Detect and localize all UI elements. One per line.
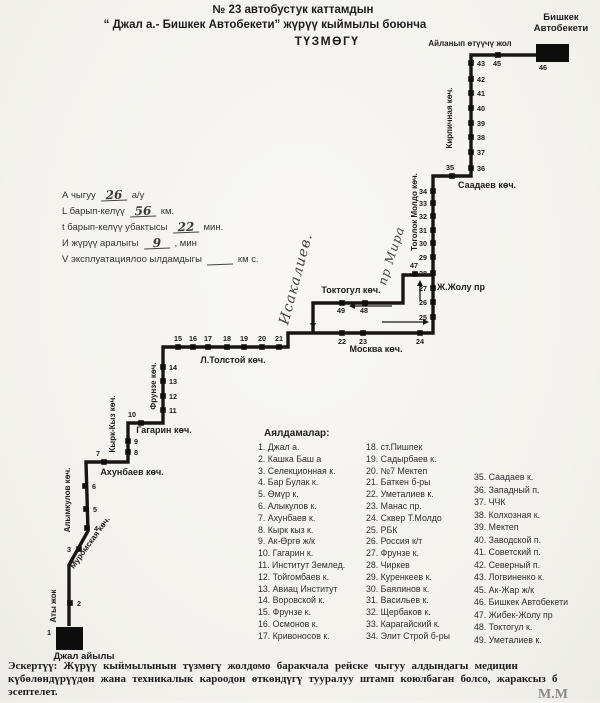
stop-number: 15 — [174, 334, 182, 343]
street-label: Токтогул көч. — [321, 285, 380, 295]
stop-number: 41 — [477, 89, 485, 98]
stop-tick — [160, 393, 166, 399]
legend-item: 42. Северный п. — [474, 559, 568, 572]
street-label: Ж.Жолу пр — [436, 282, 485, 292]
bishkek-terminal-label: Автобекети — [534, 23, 589, 34]
stop-number: 29 — [419, 253, 427, 262]
param-unit: км с. — [238, 254, 259, 265]
stop-tick — [468, 90, 474, 96]
note-line-1: Эскертүү:Жүрүү кыймылынын түзмөгү жолдом… — [8, 660, 600, 673]
street-label: Муромская көч. — [68, 515, 112, 570]
legend-item: 3. Селекционная к. — [258, 466, 345, 478]
legend-item: 22. Уметалиев к. — [366, 489, 450, 501]
param-row: И жүрүү аралыгы9, мин — [62, 238, 259, 249]
stop-tick — [76, 546, 82, 552]
legend-item: 26. Россия к/т — [366, 536, 450, 548]
param-label: t барып-келүү убактысы — [62, 222, 168, 233]
stop-tick — [101, 459, 107, 465]
stop-tick — [430, 200, 436, 206]
stop-number: 10 — [128, 410, 136, 419]
param-label: А чыгуу — [62, 190, 96, 201]
param-unit: а/у — [132, 190, 145, 201]
footer-note: Эскертүү:Жүрүү кыймылынын түзмөгү жолдом… — [8, 660, 600, 699]
street-label: Тоголок Молдо көч. — [410, 173, 419, 251]
param-row: V эксплуатациялоо ылдамдыгыкм с. — [62, 254, 259, 265]
stop-tick — [190, 344, 196, 350]
legend-item: 36. Западный п. — [474, 484, 568, 497]
stop-number: 20 — [258, 334, 266, 343]
legend-item: 24. Сквер Т.Молдо — [366, 513, 450, 525]
legend-item: 20. №7 Мектеп — [366, 466, 450, 478]
stop-number: 39 — [477, 119, 485, 128]
street-label: Кирпичная көч. — [445, 87, 454, 148]
stop-number: 30 — [419, 239, 427, 248]
stop-tick — [138, 420, 144, 426]
legend-item: 11. Институт Землед. — [258, 560, 345, 572]
stop-tick — [205, 344, 211, 350]
legend-item: 13. Авиац Институт — [258, 584, 345, 596]
param-unit: мин. — [204, 222, 224, 233]
legend-item: 48. Токтогул к. — [474, 621, 568, 634]
handwritten-street-label: пр Мира — [375, 225, 407, 287]
param-handwritten-value: 26 — [101, 190, 127, 202]
stop-number: 22 — [338, 337, 346, 346]
param-handwritten-value — [207, 264, 233, 266]
legend-item: 1. Джал а. — [258, 442, 345, 454]
stop-tick — [160, 378, 166, 384]
legend-item: 7. Ахунбаев к. — [258, 513, 345, 525]
stop-number: 17 — [204, 334, 212, 343]
street-label: Кырк-Кыз көч. — [108, 396, 117, 453]
stop-tick — [468, 60, 474, 66]
stop-tick — [449, 173, 455, 179]
stop-number: 14 — [169, 363, 177, 372]
stop-tick — [430, 227, 436, 233]
street-label: Ахунбаев көч. — [100, 467, 163, 477]
stop-tick — [83, 506, 89, 512]
stop-number: 32 — [419, 212, 427, 221]
stop-number: 3 — [67, 545, 71, 554]
stop-number: 42 — [477, 75, 485, 84]
stop-number: 7 — [96, 449, 100, 458]
param-label: L барып-келүү — [62, 206, 125, 217]
stop-tick — [160, 407, 166, 413]
stop-tick — [82, 483, 88, 489]
stop-number: 25 — [419, 313, 427, 322]
legend-item: 14. Воровской к. — [258, 595, 345, 607]
stop-tick — [362, 300, 368, 306]
stop-tick — [175, 344, 181, 350]
street-label: Аты жок — [49, 589, 58, 623]
stop-tick — [276, 344, 282, 350]
legend-header: Аялдамалар: — [264, 428, 330, 439]
legend-item: 23. Манас пр. — [366, 501, 450, 513]
stop-number: 46 — [539, 63, 547, 72]
legend-item: 41. Советский п. — [474, 546, 568, 559]
stop-tick — [339, 330, 345, 336]
direction-arrow-head — [417, 280, 423, 286]
stop-tick — [67, 600, 73, 606]
stop-number: 6 — [92, 482, 96, 491]
param-unit: км. — [161, 206, 174, 217]
stop-number: 24 — [416, 337, 424, 346]
stop-number: 1 — [47, 628, 51, 637]
note-prefix: Эскертүү: — [8, 660, 57, 672]
document-title-line1: № 23 автобустук каттамдын — [213, 4, 374, 16]
stop-number: 28 — [419, 269, 427, 278]
bishkek-terminal-square — [536, 44, 569, 62]
stop-number: 35 — [446, 163, 454, 172]
stop-number: 27 — [419, 284, 427, 293]
document-title-line3: ТҮЗМӨГҮ — [295, 34, 360, 48]
legend-item: 32. Щербаков к. — [366, 607, 450, 619]
jal-terminal-square — [56, 627, 83, 650]
legend-item: 5. Өмүр к. — [258, 489, 345, 501]
legend-item: 8. Кырк кыз к. — [258, 525, 345, 537]
stop-number: 49 — [337, 306, 345, 315]
stop-number: 26 — [419, 298, 427, 307]
legend-item: 35. Саадаев к. — [474, 471, 568, 484]
stop-number: 4 — [94, 524, 98, 533]
stop-number: 18 — [223, 334, 231, 343]
stop-number: 45 — [493, 59, 501, 68]
stop-number: 21 — [275, 334, 283, 343]
stop-number: 12 — [169, 392, 177, 401]
stop-number: 37 — [477, 148, 485, 157]
legend-item: 31. Васильев к. — [366, 595, 450, 607]
street-label: Москва көч. — [349, 344, 402, 354]
stop-tick — [468, 134, 474, 140]
stop-number: 33 — [419, 199, 427, 208]
legend-item: 10. Гагарин к. — [258, 548, 345, 560]
signature: М.М — [538, 687, 568, 703]
legend-item: 15. Фрунзе к. — [258, 607, 345, 619]
legend-item: 2. Кашка Баш а — [258, 454, 345, 466]
street-label: Айланып өтүүчү жол — [428, 39, 511, 48]
stop-tick — [468, 149, 474, 155]
legend-column-2: 18. ст.Пишпек19. Садырбаев к.20. №7 Мект… — [366, 442, 450, 643]
stop-tick — [430, 285, 436, 291]
param-handwritten-value: 9 — [143, 238, 169, 250]
legend-item: 25. РБК — [366, 525, 450, 537]
document-title-line2: “ Джал а.- Бишкек Автобекети” жүрүү кыйм… — [104, 19, 427, 31]
stop-number: 31 — [419, 226, 427, 235]
street-label: Фрунзе көч. — [149, 362, 158, 409]
legend-item: 29. Куренкеев к. — [366, 572, 450, 584]
stop-tick — [468, 120, 474, 126]
stop-tick — [125, 449, 131, 455]
param-row: L барып-келүү56км. — [62, 206, 259, 217]
stop-number: 40 — [477, 104, 485, 113]
legend-item: 19. Садырбаев к. — [366, 454, 450, 466]
legend-item: 9. Ак-Өргө ж/к — [258, 536, 345, 548]
note-line-2: күбөлөндүрүүдөн жана техникалык кароодон… — [8, 673, 600, 686]
direction-arrow-head — [310, 323, 316, 329]
stop-tick — [84, 525, 90, 531]
stop-tick — [412, 271, 418, 277]
note-line-3: эсептелет. — [8, 686, 600, 699]
street-label: Алымкулов көч. — [63, 468, 72, 533]
legend-item: 45. Ак-Жар ж/к — [474, 584, 568, 597]
stop-number: 8 — [134, 448, 138, 457]
legend-item: 18. ст.Пишпек — [366, 442, 450, 454]
stop-tick — [125, 438, 131, 444]
legend-item: 28. Чиркев — [366, 560, 450, 572]
legend-item: 37. ЧЧК — [474, 496, 568, 509]
legend-item: 46. Бишкек Автобекети — [474, 596, 568, 609]
stop-number: 38 — [477, 133, 485, 142]
legend-item: 38. Колхозная к. — [474, 509, 568, 522]
stop-number: 34 — [419, 187, 427, 196]
param-unit: , мин — [175, 238, 197, 249]
legend-item: 49. Уметалиев к. — [474, 634, 568, 647]
legend-item: 47. Жибек-Жолу пр — [474, 609, 568, 622]
stop-number: 19 — [240, 334, 248, 343]
stop-number: 23 — [359, 337, 367, 346]
param-handwritten-value: 22 — [172, 222, 198, 234]
param-row: А чыгуу26а/у — [62, 190, 259, 201]
stop-number: 43 — [477, 59, 485, 68]
stop-number: 16 — [189, 334, 197, 343]
street-label: Гагарин көч. — [136, 425, 191, 435]
legend-column-1: 1. Джал а.2. Кашка Баш а3. Селекционная … — [258, 442, 345, 643]
stop-tick — [417, 330, 423, 336]
note-text-1: Жүрүү кыймылынын түзмөгү жолдомо баракча… — [63, 660, 517, 672]
direction-arrow-head — [423, 319, 429, 325]
stop-tick — [430, 270, 436, 276]
param-handwritten-value: 56 — [130, 206, 156, 218]
param-label: И жүрүү аралыгы — [62, 238, 139, 249]
stop-tick — [430, 188, 436, 194]
stop-tick — [430, 314, 436, 320]
bishkek-terminal-label: Бишкек — [543, 12, 579, 23]
stop-number: 11 — [169, 406, 177, 415]
legend-item: 6. Алыкулов к. — [258, 501, 345, 513]
scanned-route-document: № 23 автобустук каттамдын “ Джал а.- Биш… — [0, 0, 600, 700]
legend-item: 16. Осмонов к. — [258, 619, 345, 631]
stop-tick — [259, 344, 265, 350]
legend-item: 12. Тойгомбаев к. — [258, 572, 345, 584]
legend-item: 34. Элит Строй б-ры — [366, 631, 450, 643]
stop-tick — [430, 213, 436, 219]
legend-item: 33. Карагайский к. — [366, 619, 450, 631]
stop-number: 9 — [134, 437, 138, 446]
legend-item: 17. Кривоносов к. — [258, 631, 345, 643]
legend-item: 27. Фрунзе к. — [366, 548, 450, 560]
stop-tick — [339, 300, 345, 306]
route-parameters: А чыгуу26а/уL барып-келүү56км.t барып-ке… — [62, 190, 259, 270]
legend-item: 40. Заводской п. — [474, 534, 568, 547]
stop-tick — [430, 254, 436, 260]
legend-item: 39. Мектеп — [474, 521, 568, 534]
route-line — [313, 275, 433, 333]
legend-column-3: 35. Саадаев к.36. Западный п.37. ЧЧК38. … — [474, 471, 568, 646]
legend-item: 21. Баткен б-ры — [366, 477, 450, 489]
street-label: Саадаев көч. — [458, 180, 516, 190]
stop-tick — [430, 240, 436, 246]
stop-number: 13 — [169, 377, 177, 386]
street-label: Л.Толстой көч. — [200, 355, 265, 365]
stop-tick — [224, 344, 230, 350]
stop-tick — [430, 299, 436, 305]
param-row: t барып-келүү убактысы22мин. — [62, 222, 259, 233]
param-label: V эксплуатациялоо ылдамдыгы — [62, 254, 202, 265]
stop-tick — [468, 76, 474, 82]
legend-item: 30. Баялинов к. — [366, 584, 450, 596]
legend-item: 4. Бар Булак к. — [258, 477, 345, 489]
stop-number: 5 — [93, 505, 97, 514]
stop-tick — [468, 105, 474, 111]
stop-tick — [360, 330, 366, 336]
legend-item: 43. Логвиненко к. — [474, 571, 568, 584]
handwritten-street-label: Исакалиев. — [276, 232, 316, 328]
stop-tick — [468, 165, 474, 171]
stop-number: 47 — [410, 261, 418, 270]
stop-number: 36 — [477, 164, 485, 173]
stop-number: 2 — [77, 599, 81, 608]
direction-arrow-head — [349, 303, 355, 309]
stop-tick — [495, 52, 501, 58]
stop-tick — [160, 364, 166, 370]
stop-number: 48 — [360, 306, 368, 315]
stop-tick — [241, 344, 247, 350]
